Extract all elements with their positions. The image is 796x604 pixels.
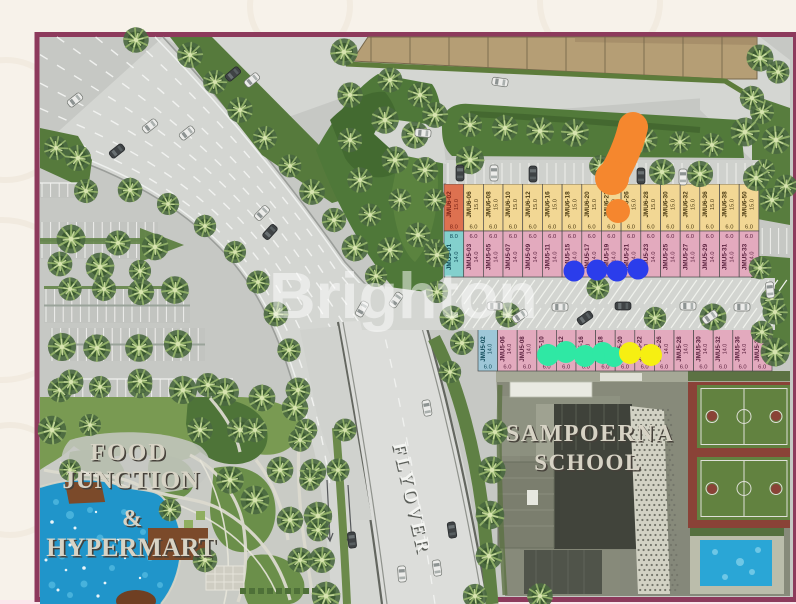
svg-text:15.0: 15.0 [730, 199, 736, 210]
svg-text:6.0: 6.0 [607, 225, 615, 231]
svg-text:14.0: 14.0 [507, 344, 513, 355]
svg-text:15.0: 15.0 [513, 199, 519, 210]
svg-text:6.0: 6.0 [647, 225, 655, 231]
svg-text:JMU6-30: JMU6-30 [663, 191, 670, 218]
svg-text:JMU5-30: JMU5-30 [695, 336, 702, 362]
svg-text:6.0: 6.0 [627, 234, 635, 240]
svg-text:14.0: 14.0 [651, 252, 657, 263]
svg-text:6.0: 6.0 [706, 225, 714, 231]
svg-text:JMU5-36: JMU5-36 [735, 336, 742, 362]
svg-text:JMU6-16: JMU6-16 [545, 191, 552, 218]
svg-text:15.0: 15.0 [690, 199, 696, 210]
svg-text:JMU5-27: JMU5-27 [682, 243, 689, 270]
svg-text:&: & [122, 506, 142, 532]
svg-text:HYPERMART: HYPERMART [46, 533, 216, 562]
svg-text:JMU6-06: JMU6-06 [466, 191, 473, 218]
svg-text:6.0: 6.0 [548, 234, 556, 240]
svg-text:JMU6-12: JMU6-12 [525, 191, 532, 218]
svg-text:JMU6-18: JMU6-18 [564, 191, 571, 218]
svg-text:15.0: 15.0 [474, 199, 480, 210]
svg-text:JMU5-29: JMU5-29 [702, 243, 709, 270]
svg-text:6.0: 6.0 [745, 225, 753, 231]
svg-text:14.0: 14.0 [527, 344, 533, 355]
svg-text:JMU5-28: JMU5-28 [676, 336, 683, 362]
svg-text:JMU6-02: JMU6-02 [446, 191, 453, 218]
svg-text:14.0: 14.0 [671, 252, 677, 263]
svg-text:6.0: 6.0 [739, 365, 747, 371]
svg-text:6.0: 6.0 [686, 234, 694, 240]
svg-text:6.0: 6.0 [725, 225, 733, 231]
svg-text:6.0: 6.0 [660, 365, 668, 371]
svg-text:6.0: 6.0 [469, 234, 477, 240]
svg-text:6.0: 6.0 [601, 365, 609, 371]
svg-text:JMU6-10: JMU6-10 [505, 191, 512, 218]
svg-text:6.0: 6.0 [588, 234, 596, 240]
svg-text:6.0: 6.0 [509, 234, 517, 240]
svg-text:6.0: 6.0 [588, 225, 596, 231]
svg-text:14.0: 14.0 [553, 252, 559, 263]
svg-text:14.0: 14.0 [710, 252, 716, 263]
svg-text:15.0: 15.0 [454, 199, 460, 210]
svg-text:14.0: 14.0 [723, 344, 729, 355]
svg-text:JMU6-32: JMU6-32 [682, 191, 689, 218]
svg-text:14.0: 14.0 [487, 344, 493, 355]
svg-text:15.0: 15.0 [651, 199, 657, 210]
svg-text:6.0: 6.0 [627, 225, 635, 231]
svg-text:JMU5-02: JMU5-02 [480, 336, 487, 362]
svg-text:8.0: 8.0 [450, 225, 458, 231]
svg-text:6.0: 6.0 [548, 225, 556, 231]
svg-text:15.0: 15.0 [494, 199, 500, 210]
svg-text:15.0: 15.0 [592, 199, 598, 210]
svg-text:6.0: 6.0 [666, 234, 674, 240]
svg-text:6.0: 6.0 [666, 225, 674, 231]
svg-text:15.0: 15.0 [631, 199, 637, 210]
svg-text:8.0: 8.0 [450, 234, 458, 240]
svg-text:6.0: 6.0 [745, 234, 753, 240]
svg-text:JMU5-06: JMU5-06 [499, 336, 506, 362]
svg-text:JMU5-11: JMU5-11 [545, 244, 552, 270]
svg-text:JUNCTION: JUNCTION [62, 465, 199, 494]
svg-text:JMU5-33: JMU5-33 [741, 243, 748, 270]
svg-text:JMU6-20: JMU6-20 [584, 191, 591, 218]
svg-text:15.0: 15.0 [572, 199, 578, 210]
svg-text:15.0: 15.0 [710, 199, 716, 210]
svg-text:6.0: 6.0 [529, 234, 537, 240]
svg-text:JMU5-32: JMU5-32 [715, 336, 722, 362]
svg-text:Brighton: Brighton [269, 260, 538, 332]
svg-text:SCHOOL: SCHOOL [534, 450, 641, 475]
svg-text:14.0: 14.0 [703, 344, 709, 355]
svg-text:15.0: 15.0 [533, 199, 539, 210]
svg-text:14.0: 14.0 [690, 252, 696, 263]
svg-text:6.0: 6.0 [503, 365, 511, 371]
svg-text:6.0: 6.0 [568, 234, 576, 240]
svg-text:6.0: 6.0 [686, 225, 694, 231]
svg-text:JMU5-08: JMU5-08 [519, 336, 526, 362]
svg-text:6.0: 6.0 [489, 225, 497, 231]
svg-text:SAMPOERNA: SAMPOERNA [506, 421, 674, 447]
svg-text:JMU6-36: JMU6-36 [702, 191, 709, 218]
svg-text:6.0: 6.0 [484, 365, 492, 371]
svg-text:6.0: 6.0 [568, 225, 576, 231]
svg-text:14.0: 14.0 [664, 344, 670, 355]
svg-text:JMU6-28: JMU6-28 [643, 191, 650, 218]
svg-text:FOOD: FOOD [90, 440, 167, 466]
svg-text:JMU6-08: JMU6-08 [486, 191, 493, 218]
svg-text:6.0: 6.0 [489, 234, 497, 240]
svg-text:15.0: 15.0 [553, 199, 559, 210]
svg-text:15.0: 15.0 [749, 199, 755, 210]
svg-text:6.0: 6.0 [523, 365, 531, 371]
svg-text:6.0: 6.0 [562, 365, 570, 371]
svg-text:14.0: 14.0 [742, 344, 748, 355]
svg-text:15.0: 15.0 [671, 199, 677, 210]
svg-text:6.0: 6.0 [607, 234, 615, 240]
svg-text:JMU5-31: JMU5-31 [722, 243, 729, 270]
svg-text:6.0: 6.0 [621, 365, 629, 371]
svg-text:6.0: 6.0 [719, 365, 727, 371]
svg-text:JMU5-25: JMU5-25 [663, 243, 670, 270]
svg-text:6.0: 6.0 [699, 365, 707, 371]
svg-text:JMU6-50: JMU6-50 [741, 191, 748, 218]
svg-text:6.0: 6.0 [529, 225, 537, 231]
svg-text:14.0: 14.0 [683, 344, 689, 355]
svg-text:6.0: 6.0 [647, 234, 655, 240]
svg-text:6.0: 6.0 [725, 234, 733, 240]
svg-text:6.0: 6.0 [680, 365, 688, 371]
svg-text:6.0: 6.0 [469, 225, 477, 231]
svg-text:14.0: 14.0 [730, 252, 736, 263]
svg-text:6.0: 6.0 [509, 225, 517, 231]
svg-text:JMU6-38: JMU6-38 [722, 191, 729, 218]
svg-text:6.0: 6.0 [706, 234, 714, 240]
svg-text:6.0: 6.0 [758, 365, 766, 371]
